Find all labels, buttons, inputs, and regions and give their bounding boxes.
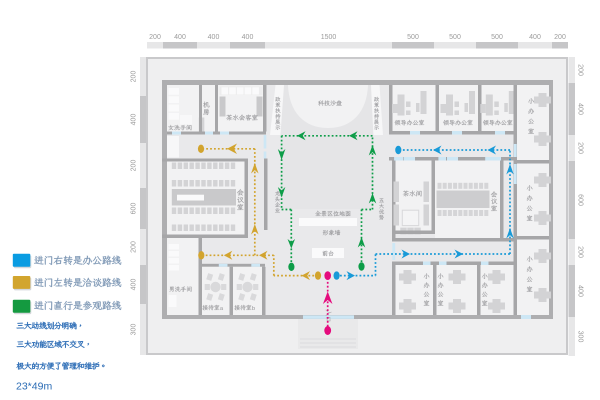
svg-text:500: 500 bbox=[407, 34, 419, 41]
svg-text:300: 300 bbox=[577, 331, 584, 343]
svg-text:200: 200 bbox=[131, 160, 138, 172]
svg-text:600: 600 bbox=[131, 203, 138, 215]
svg-text:b: b bbox=[252, 306, 255, 312]
svg-text:400: 400 bbox=[131, 279, 138, 291]
svg-text:23*49m: 23*49m bbox=[16, 381, 52, 393]
svg-text:300: 300 bbox=[131, 324, 138, 336]
svg-text:200: 200 bbox=[131, 241, 138, 253]
svg-text:400: 400 bbox=[242, 34, 254, 41]
svg-text:400: 400 bbox=[174, 34, 186, 41]
svg-text:400: 400 bbox=[577, 285, 584, 297]
svg-text:400: 400 bbox=[529, 34, 541, 41]
svg-text:400: 400 bbox=[131, 114, 138, 126]
svg-text:200: 200 bbox=[577, 64, 584, 76]
svg-text:200: 200 bbox=[577, 246, 584, 258]
svg-text:600: 600 bbox=[577, 194, 584, 206]
svg-text:1500: 1500 bbox=[321, 34, 337, 41]
svg-text:200: 200 bbox=[577, 142, 584, 154]
svg-text:500: 500 bbox=[449, 34, 461, 41]
svg-text:400: 400 bbox=[208, 34, 220, 41]
svg-text:500: 500 bbox=[491, 34, 503, 41]
svg-text:200: 200 bbox=[554, 34, 566, 41]
svg-text:200: 200 bbox=[131, 71, 138, 83]
svg-text:200: 200 bbox=[149, 34, 161, 41]
svg-text:400: 400 bbox=[577, 103, 584, 115]
